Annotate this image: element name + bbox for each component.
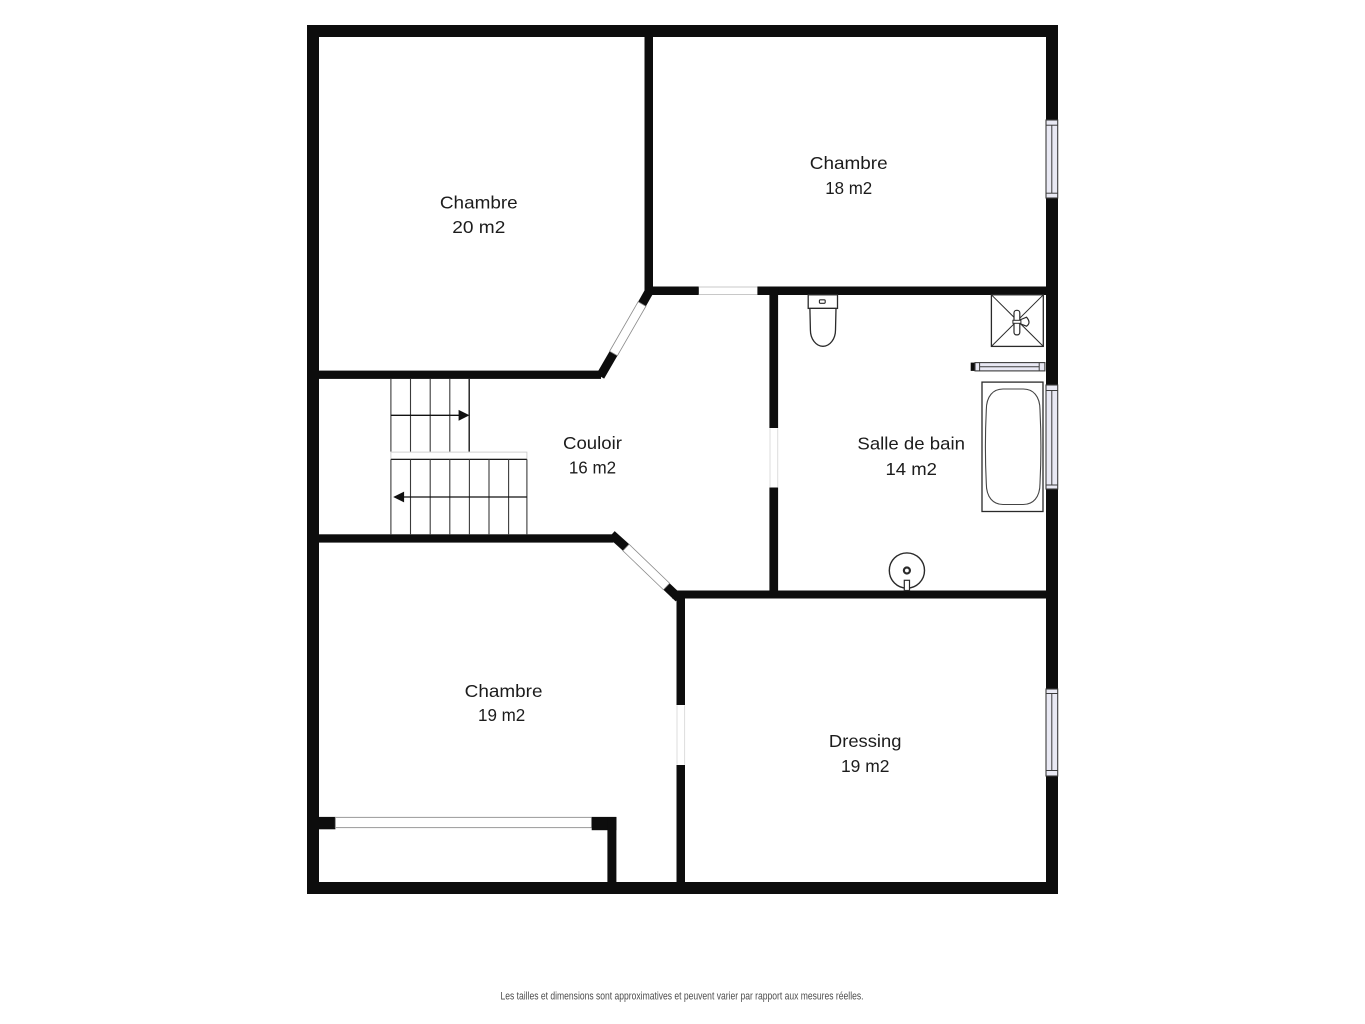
- svg-text:14 m2: 14 m2: [886, 459, 937, 479]
- svg-text:16 m2: 16 m2: [569, 458, 616, 478]
- svg-text:Chambre: Chambre: [810, 153, 888, 173]
- svg-text:Les tailles et dimensions sont: Les tailles et dimensions sont approxima…: [501, 991, 864, 1003]
- svg-text:Chambre: Chambre: [465, 681, 543, 701]
- svg-text:18 m2: 18 m2: [825, 178, 872, 198]
- svg-text:Dressing: Dressing: [829, 731, 902, 751]
- svg-text:Salle de bain: Salle de bain: [857, 434, 965, 454]
- svg-text:19 m2: 19 m2: [478, 705, 525, 725]
- svg-text:Couloir: Couloir: [563, 433, 622, 453]
- svg-text:20 m2: 20 m2: [452, 217, 505, 237]
- svg-text:Chambre: Chambre: [440, 192, 518, 212]
- svg-text:19 m2: 19 m2: [841, 756, 889, 776]
